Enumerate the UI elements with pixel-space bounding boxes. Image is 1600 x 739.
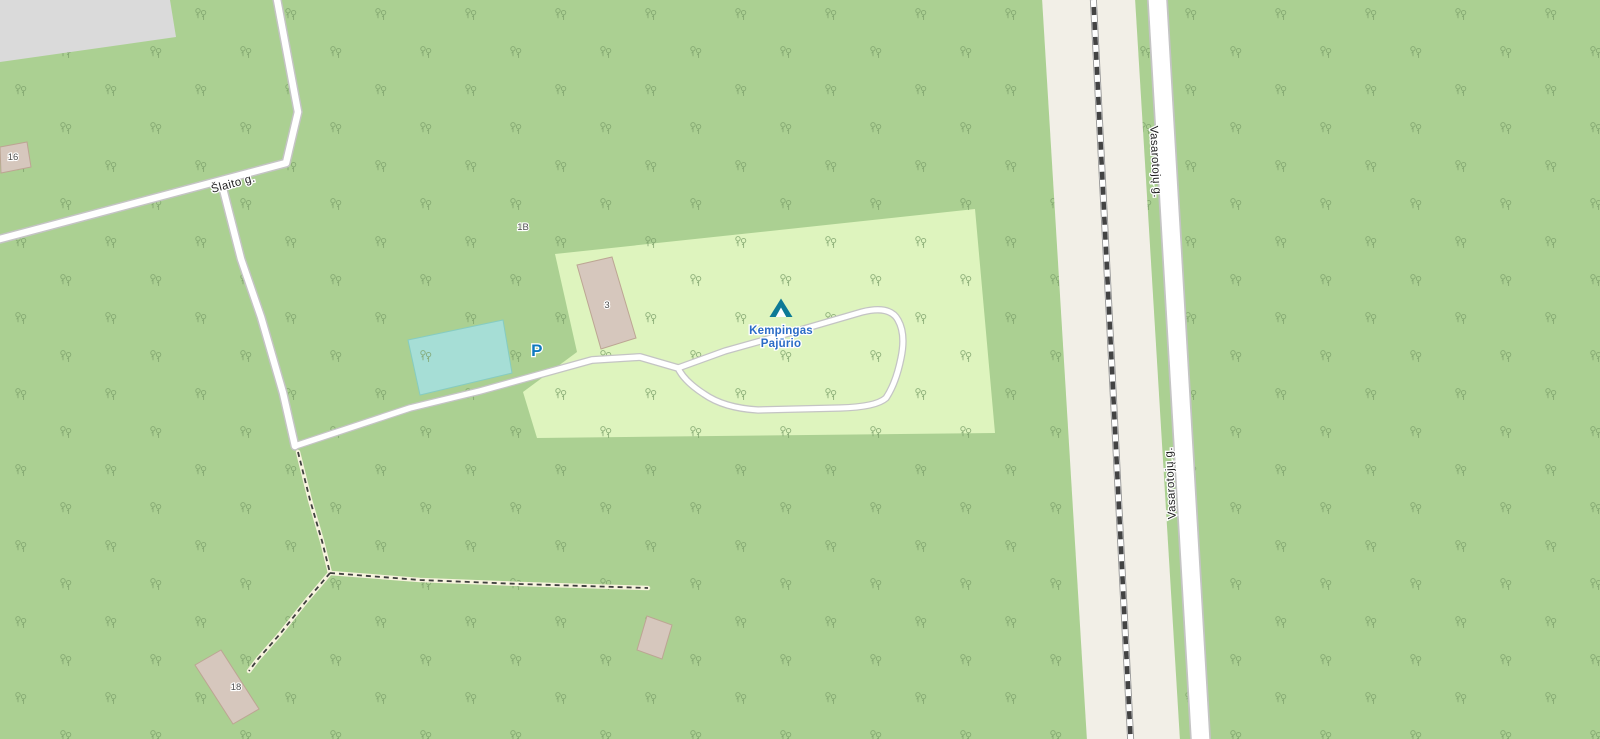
housenumber-1b: 1B bbox=[517, 222, 529, 233]
campsite-name-line1[interactable]: Kempingas bbox=[749, 325, 813, 337]
tree-pattern-overlay bbox=[0, 0, 1600, 739]
map-canvas[interactable]: Šlaito g. Vasarotojų g. Vasarotojų g. Ke… bbox=[0, 0, 1600, 739]
parking-icon[interactable]: P bbox=[531, 341, 543, 360]
map-viewport[interactable]: Šlaito g. Vasarotojų g. Vasarotojų g. Ke… bbox=[0, 0, 1600, 739]
housenumber-18: 18 bbox=[231, 682, 242, 693]
campsite-name-line2[interactable]: Pajūrio bbox=[761, 338, 801, 350]
housenumber-3: 3 bbox=[604, 300, 609, 311]
housenumber-16: 16 bbox=[8, 152, 19, 163]
